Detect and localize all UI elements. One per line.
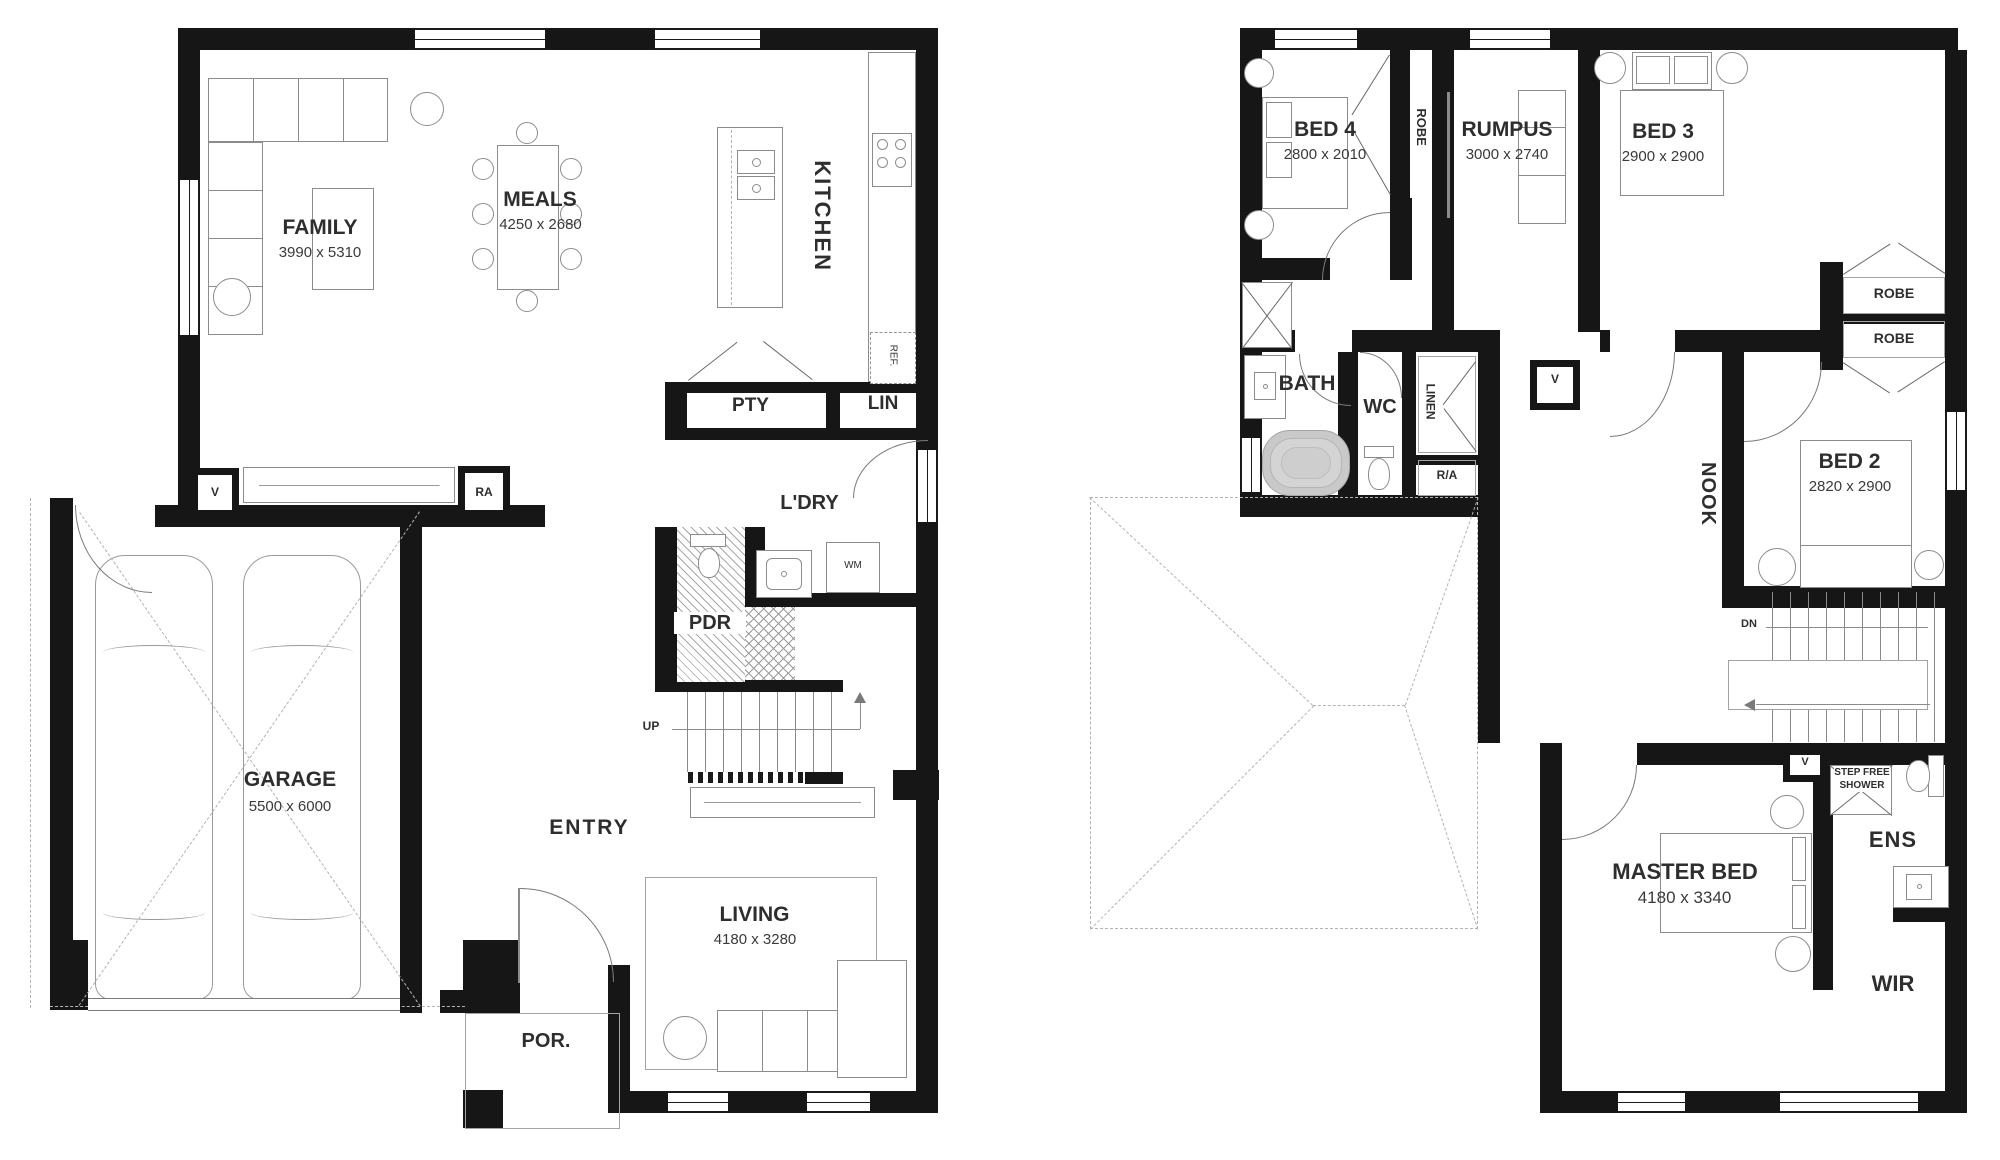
room-label-entry: ENTRY — [532, 816, 647, 839]
door-arc — [1322, 212, 1390, 280]
island-centerline — [731, 130, 732, 305]
window — [668, 1091, 728, 1113]
closet-label-robe-top: ROBE — [1845, 286, 1943, 301]
room-dims-garage: 5500 x 6000 — [225, 798, 355, 815]
bifold-door — [1352, 54, 1390, 115]
room-label-living: LIVING — [697, 903, 812, 926]
basin-drain — [1917, 884, 1922, 889]
sink-drain — [781, 571, 787, 577]
room-label-rumpus: RUMPUS — [1442, 118, 1572, 141]
wall — [760, 28, 938, 50]
sink-drain — [752, 158, 761, 167]
wall — [1402, 352, 1416, 495]
wall — [655, 527, 677, 692]
wall — [1478, 330, 1500, 743]
room-dims-living: 4180 x 3280 — [695, 931, 815, 948]
room-label-porch: POR. — [508, 1030, 584, 1052]
wall — [1240, 28, 1275, 50]
room-label-laundry: L'DRY — [752, 492, 867, 514]
room-dims-meals: 4250 x 2680 — [473, 216, 608, 233]
room-label-meals: MEALS — [480, 188, 600, 211]
sink-drain — [752, 184, 761, 193]
room-label-powder: PDR — [674, 612, 746, 634]
wall — [916, 522, 938, 1091]
bifold-door — [763, 341, 812, 380]
side-table — [1716, 52, 1748, 84]
wall — [1540, 1091, 1618, 1113]
room-dims-bed3: 2900 x 2900 — [1600, 148, 1726, 165]
understair-hatch — [745, 607, 795, 680]
room-label-bed3: BED 3 — [1608, 120, 1718, 143]
sofa — [208, 78, 388, 142]
side-table — [410, 92, 444, 126]
wall — [1722, 352, 1744, 608]
room-label-nook: NOOK — [1697, 442, 1719, 546]
garage-door — [88, 998, 400, 1011]
closet-label-robe-bed4: ROBE — [1414, 89, 1428, 165]
stairs-up-label: UP — [638, 720, 664, 733]
down-arrow — [1744, 699, 1755, 711]
wall — [893, 770, 939, 800]
fridge-label: REF. — [888, 329, 899, 383]
side-table — [1775, 936, 1811, 972]
room-dims-family: 3990 x 5310 — [250, 244, 390, 261]
room-dims-rumpus: 3000 x 2740 — [1444, 146, 1570, 163]
wall — [1578, 50, 1600, 332]
bed-foot-line — [1800, 545, 1912, 546]
wall — [178, 50, 200, 180]
wall — [1945, 490, 1967, 1113]
window — [1780, 1091, 1850, 1113]
wall — [400, 527, 422, 1013]
side-table — [1770, 795, 1804, 829]
bifold-door — [1843, 244, 1891, 275]
toilet-tank — [1928, 755, 1944, 797]
window — [1275, 28, 1357, 50]
dining-chair — [516, 122, 538, 144]
window — [1240, 438, 1262, 492]
door-arc — [75, 505, 152, 593]
burner — [877, 139, 888, 150]
wall — [178, 28, 415, 50]
toilet-tank — [690, 534, 726, 547]
up-arrow — [854, 692, 866, 703]
wall — [1390, 198, 1412, 280]
wall — [1893, 908, 1967, 922]
wall — [1945, 50, 1967, 412]
side-table — [1244, 58, 1274, 88]
dining-chair — [472, 248, 494, 270]
dining-chair — [560, 248, 582, 270]
stairs — [687, 692, 840, 772]
wall — [672, 428, 938, 440]
washing-machine-label: WM — [826, 560, 880, 571]
burner — [877, 157, 888, 168]
car-windshield — [103, 645, 205, 660]
room-label-bed2: BED 2 — [1792, 450, 1907, 473]
room-label-bed4: BED 4 — [1270, 118, 1380, 141]
wall — [1240, 258, 1330, 280]
dining-chair — [560, 158, 582, 180]
car-rear-window — [251, 905, 353, 920]
pillow — [1792, 885, 1806, 929]
return-air-label: R/A — [1420, 469, 1474, 482]
bifold-door — [688, 342, 737, 381]
hall-bench — [690, 787, 875, 818]
stair-direction-line — [672, 729, 860, 730]
wall — [870, 1091, 938, 1113]
wall — [728, 1091, 807, 1113]
hall-shelf — [243, 467, 455, 503]
bifold-door — [1898, 243, 1946, 274]
wall — [1390, 50, 1410, 198]
side-table — [1594, 52, 1626, 84]
wall — [1820, 262, 1843, 370]
window — [1470, 28, 1550, 50]
door-arc — [1360, 352, 1402, 398]
wall — [1918, 1091, 1967, 1113]
window — [655, 28, 760, 50]
door-arc — [853, 440, 928, 498]
closet-label-linen: LINEN — [1423, 364, 1436, 440]
window — [178, 180, 200, 335]
roof-outline — [1090, 497, 1478, 929]
dining-chair — [472, 158, 494, 180]
room-label-ensuite: ENS — [1852, 828, 1934, 852]
room-label-bath: BATH — [1272, 372, 1342, 395]
window — [415, 28, 545, 50]
wall — [50, 498, 73, 940]
driveway-dash — [30, 498, 31, 1008]
pillow — [1792, 837, 1806, 881]
toilet-bowl — [1906, 760, 1930, 792]
room-label-family: FAMILY — [250, 216, 390, 239]
window — [1945, 412, 1967, 490]
stair-direction-line — [1756, 704, 1930, 705]
window — [1618, 1091, 1685, 1113]
closet-label-robe-bottom: ROBE — [1845, 331, 1943, 346]
wall — [1675, 330, 1843, 352]
stair-direction-line — [860, 702, 861, 729]
door-arc — [1562, 765, 1637, 840]
basin-drain — [1263, 384, 1268, 389]
side-table — [663, 1016, 707, 1060]
stair-flight-outline — [1728, 660, 1928, 710]
wall — [1357, 28, 1470, 50]
roof-ridge-line — [1313, 705, 1405, 706]
toilet-tank — [1364, 446, 1394, 458]
room-dims-master: 4180 x 3340 — [1612, 888, 1757, 908]
stair-direction-line — [1766, 627, 1928, 628]
side-table — [1758, 548, 1796, 586]
sofa-chaise — [837, 960, 907, 1078]
toilet-bowl — [698, 548, 720, 578]
vent-label-hall: V — [1530, 373, 1580, 386]
vent-label: V — [191, 486, 239, 499]
door-arc — [520, 888, 614, 982]
room-dims-bed4: 2800 x 2010 — [1264, 146, 1386, 163]
side-table — [213, 278, 251, 316]
bathtub-basin — [1281, 447, 1331, 479]
side-table — [1914, 550, 1944, 580]
room-dims-bed2: 2820 x 2900 — [1786, 478, 1914, 495]
wall — [545, 28, 655, 50]
window — [1850, 1091, 1918, 1113]
burner — [895, 139, 906, 150]
room-label-garage: GARAGE — [220, 768, 360, 791]
burner — [895, 157, 906, 168]
side-table — [1244, 210, 1274, 240]
door-leaf — [518, 888, 520, 983]
return-air-label: RA — [458, 486, 510, 499]
room-label-kitchen: KITCHEN — [810, 136, 834, 296]
room-label-linen-g: LIN — [848, 394, 918, 415]
door-arc — [1610, 352, 1675, 437]
wall — [1432, 50, 1454, 332]
shower-label: STEP FREE SHOWER — [1834, 766, 1890, 792]
door-arc — [1744, 362, 1822, 442]
room-label-pantry: PTY — [713, 396, 788, 417]
wall — [826, 382, 840, 440]
stair-nosing-strip — [688, 772, 805, 783]
window — [807, 1091, 870, 1113]
toilet-bowl — [1368, 458, 1390, 490]
dining-chair — [516, 290, 538, 312]
vent-label-master: V — [1783, 756, 1827, 768]
wall — [1600, 330, 1610, 352]
wall — [1540, 743, 1562, 1091]
car-windshield — [251, 645, 353, 660]
wall — [1685, 1091, 1780, 1113]
room-label-wardrobe: WIR — [1852, 972, 1934, 996]
stairs-down-label: DN — [1734, 618, 1764, 630]
wall — [463, 940, 520, 1013]
wall — [1550, 28, 1958, 50]
bifold-door — [1842, 362, 1890, 393]
floor-plan-canvas: V RA REF. WM UP — [0, 0, 2000, 1160]
room-label-wc: WC — [1356, 396, 1404, 418]
pillow — [1636, 56, 1670, 84]
room-label-master: MASTER BED — [1580, 860, 1790, 884]
pillow — [1674, 56, 1708, 84]
car-rear-window — [103, 905, 205, 920]
wall — [805, 772, 843, 784]
bifold-door — [1897, 361, 1945, 392]
